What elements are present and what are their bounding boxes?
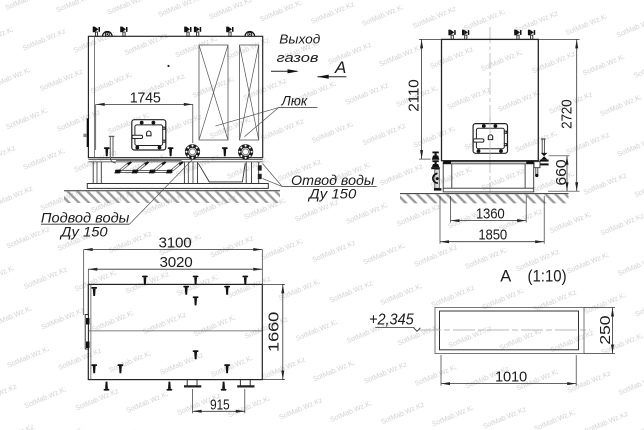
svg-text:915: 915: [210, 397, 230, 414]
svg-text:1745: 1745: [130, 90, 161, 107]
svg-text:2110: 2110: [405, 80, 422, 112]
svg-text:Ду 150: Ду 150: [59, 225, 108, 240]
svg-text:3100: 3100: [159, 235, 192, 252]
svg-text:3020: 3020: [160, 254, 193, 271]
svg-text:Ду 150: Ду 150: [307, 187, 357, 202]
svg-text:1010: 1010: [495, 368, 527, 385]
svg-text:+2,345: +2,345: [369, 312, 414, 329]
svg-text:1850: 1850: [478, 226, 507, 243]
svg-text:газов: газов: [277, 50, 319, 65]
svg-text:1360: 1360: [476, 205, 505, 222]
svg-text:А: А: [500, 267, 511, 285]
svg-text:А: А: [334, 58, 346, 77]
svg-text:Подвод воды: Подвод воды: [41, 210, 130, 225]
svg-text:1660: 1660: [265, 312, 282, 352]
svg-text:250: 250: [597, 316, 614, 345]
svg-text:(1:10): (1:10): [528, 267, 567, 285]
svg-text:Люк: Люк: [281, 94, 308, 109]
svg-text:660: 660: [553, 160, 570, 186]
svg-text:2720: 2720: [559, 100, 576, 129]
svg-text:Выход: Выход: [279, 32, 320, 47]
